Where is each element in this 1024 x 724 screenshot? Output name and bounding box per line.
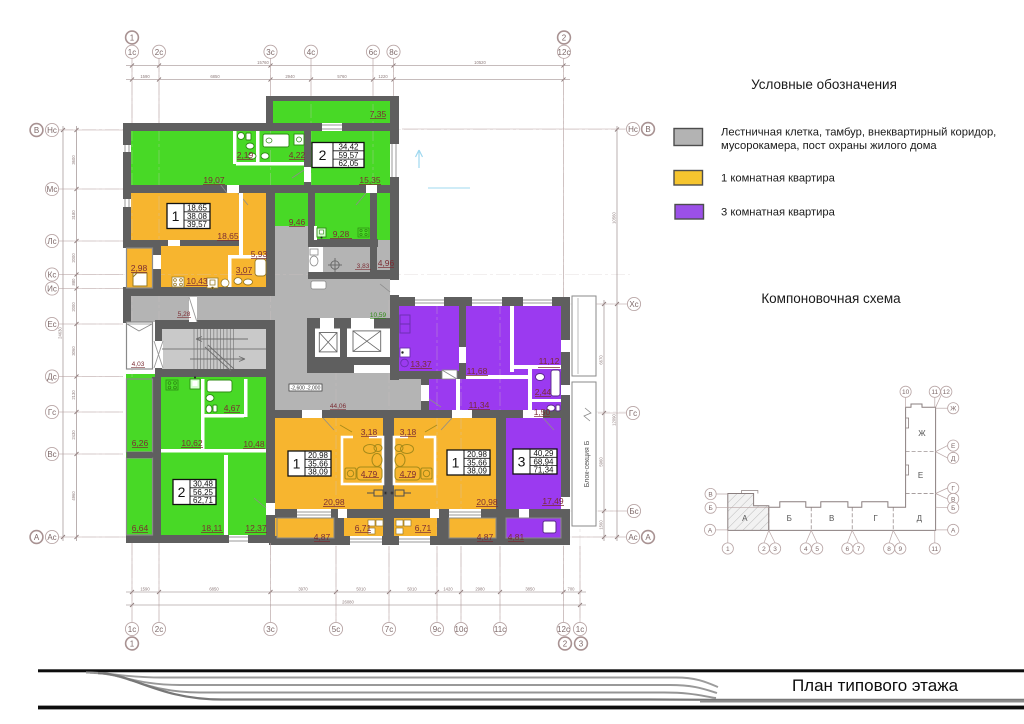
svg-text:1,50: 1,50 <box>534 407 551 417</box>
svg-text:10560: 10560 <box>612 212 617 224</box>
svg-text:1: 1 <box>172 208 180 224</box>
svg-text:А: А <box>34 533 40 542</box>
svg-text:4,96: 4,96 <box>378 258 395 268</box>
svg-text:Б: Б <box>787 514 792 523</box>
svg-text:Кс: Кс <box>48 271 57 280</box>
svg-text:71,34: 71,34 <box>533 466 554 475</box>
svg-text:План типового этажа: План типового этажа <box>792 676 959 695</box>
svg-text:Гс: Гс <box>629 409 637 418</box>
svg-text:2: 2 <box>563 640 568 649</box>
svg-text:11: 11 <box>931 546 938 553</box>
svg-text:44,06: 44,06 <box>330 403 347 410</box>
svg-text:Хс: Хс <box>629 300 638 309</box>
svg-text:Д: Д <box>917 514 923 523</box>
svg-text:5010: 5010 <box>407 587 417 592</box>
svg-text:62,05: 62,05 <box>338 159 359 168</box>
svg-text:10,43: 10,43 <box>186 276 208 286</box>
svg-text:Блок-секция Б: Блок-секция Б <box>584 440 591 487</box>
svg-text:4,87: 4,87 <box>314 532 331 542</box>
svg-text:4,87: 4,87 <box>477 532 494 542</box>
svg-text:2980: 2980 <box>475 587 485 592</box>
svg-text:Гс: Гс <box>48 408 56 417</box>
svg-text:12090: 12090 <box>612 414 617 426</box>
svg-text:3850: 3850 <box>525 587 535 592</box>
svg-text:9с: 9с <box>433 625 441 634</box>
svg-text:2: 2 <box>762 546 766 553</box>
svg-text:4960: 4960 <box>71 491 76 501</box>
svg-text:мусорокамера, пост охраны жило: мусорокамера, пост охраны жилого дома <box>721 140 937 152</box>
svg-text:Ас: Ас <box>628 533 637 542</box>
svg-text:5: 5 <box>815 546 819 553</box>
svg-text:1: 1 <box>452 455 460 471</box>
svg-text:6с: 6с <box>369 48 377 57</box>
svg-text:4,22: 4,22 <box>289 150 306 160</box>
svg-text:Д: Д <box>951 455 956 462</box>
svg-text:1560: 1560 <box>599 520 604 530</box>
svg-text:В: В <box>645 125 650 134</box>
svg-text:Дс: Дс <box>47 373 56 382</box>
svg-text:1с: 1с <box>128 625 136 634</box>
svg-text:В: В <box>34 126 39 135</box>
svg-text:1220: 1220 <box>378 74 388 79</box>
svg-text:5,28: 5,28 <box>178 311 191 318</box>
svg-text:Ж: Ж <box>950 406 956 413</box>
svg-text:11,12: 11,12 <box>539 356 560 366</box>
svg-text:3600: 3600 <box>71 155 76 165</box>
svg-text:Бс: Бс <box>629 507 638 516</box>
svg-text:18,11: 18,11 <box>202 523 223 533</box>
svg-text:2: 2 <box>178 484 186 500</box>
svg-text:10520: 10520 <box>474 60 486 65</box>
svg-text:3,83: 3,83 <box>357 263 370 270</box>
svg-text:В: В <box>829 514 834 523</box>
svg-text:8с: 8с <box>389 48 397 57</box>
svg-text:1 комнатная квартира: 1 комнатная квартира <box>721 173 836 185</box>
svg-text:20,98: 20,98 <box>323 497 345 507</box>
svg-text:39,57: 39,57 <box>187 220 208 229</box>
svg-text:6670: 6670 <box>599 355 604 365</box>
svg-text:2130: 2130 <box>71 390 76 400</box>
svg-text:А: А <box>708 527 713 534</box>
svg-text:13,37: 13,37 <box>410 359 432 369</box>
svg-text:3с: 3с <box>266 48 274 57</box>
svg-text:9,46: 9,46 <box>289 217 306 227</box>
svg-text:Г: Г <box>873 514 878 523</box>
svg-text:3180: 3180 <box>71 210 76 220</box>
svg-text:3,18: 3,18 <box>361 427 378 437</box>
svg-text:10,48: 10,48 <box>243 439 265 449</box>
svg-text:3,07: 3,07 <box>236 265 253 275</box>
svg-text:1с: 1с <box>576 625 584 634</box>
svg-text:3970: 3970 <box>298 587 308 592</box>
svg-text:1: 1 <box>130 640 135 649</box>
svg-text:Ж: Ж <box>918 429 926 438</box>
svg-text:Лестничная клетка, тамбур, вне: Лестничная клетка, тамбур, внеквартирный… <box>721 127 996 139</box>
svg-text:3,18: 3,18 <box>400 427 417 437</box>
svg-text:Б: Б <box>951 505 955 512</box>
svg-text:Г: Г <box>951 485 955 492</box>
svg-text:3: 3 <box>518 454 526 470</box>
svg-text:19,07: 19,07 <box>203 175 225 185</box>
svg-text:12: 12 <box>943 389 951 396</box>
svg-text:6: 6 <box>845 546 849 553</box>
svg-text:38,09: 38,09 <box>467 467 488 476</box>
svg-text:6,26: 6,26 <box>132 438 149 448</box>
svg-text:-2,600 -2,000: -2,600 -2,000 <box>291 386 321 392</box>
svg-text:1: 1 <box>726 546 730 553</box>
svg-text:3060: 3060 <box>71 346 76 356</box>
svg-text:11с: 11с <box>494 625 506 634</box>
svg-text:24630: 24630 <box>58 327 63 339</box>
svg-text:2,19: 2,19 <box>237 150 254 160</box>
svg-text:Е: Е <box>918 471 923 480</box>
svg-text:2с: 2с <box>155 625 163 634</box>
svg-text:4,03: 4,03 <box>132 361 145 368</box>
svg-text:2,98: 2,98 <box>131 263 148 273</box>
svg-text:А: А <box>645 533 651 542</box>
svg-text:26080: 26080 <box>342 600 354 605</box>
svg-text:Нс: Нс <box>628 125 638 134</box>
svg-text:3 комнатная квартира: 3 комнатная квартира <box>721 207 836 219</box>
svg-text:6,71: 6,71 <box>415 523 432 533</box>
svg-text:5760: 5760 <box>337 74 347 79</box>
svg-text:62,71: 62,71 <box>193 496 214 505</box>
svg-text:3: 3 <box>773 546 777 553</box>
svg-text:10с: 10с <box>455 625 468 634</box>
svg-text:1590: 1590 <box>140 74 150 79</box>
svg-text:В: В <box>708 491 712 498</box>
svg-text:4с: 4с <box>307 48 315 57</box>
svg-text:3с: 3с <box>266 625 274 634</box>
svg-text:11,68: 11,68 <box>467 366 488 376</box>
svg-text:2: 2 <box>319 147 327 163</box>
svg-text:4: 4 <box>804 546 808 553</box>
svg-text:Е: Е <box>951 443 956 450</box>
svg-text:4,81: 4,81 <box>508 532 525 542</box>
svg-text:1: 1 <box>293 456 301 472</box>
svg-text:20,98: 20,98 <box>476 497 498 507</box>
svg-text:2430: 2430 <box>71 430 76 440</box>
svg-text:9: 9 <box>898 546 902 553</box>
svg-text:7с: 7с <box>385 625 393 634</box>
svg-text:2: 2 <box>562 34 567 43</box>
svg-text:18,65: 18,65 <box>217 231 239 241</box>
svg-text:2с: 2с <box>155 48 163 57</box>
svg-text:Лс: Лс <box>47 237 56 246</box>
svg-text:11,34: 11,34 <box>469 400 490 410</box>
svg-text:880: 880 <box>71 278 76 286</box>
svg-text:17,49: 17,49 <box>542 496 564 506</box>
svg-text:10: 10 <box>902 389 910 396</box>
svg-text:2000: 2000 <box>71 253 76 263</box>
svg-text:Ас: Ас <box>47 533 56 542</box>
svg-text:6,64: 6,64 <box>132 523 149 533</box>
svg-text:1: 1 <box>130 34 135 43</box>
svg-text:6850: 6850 <box>209 587 219 592</box>
svg-text:11: 11 <box>931 389 938 396</box>
svg-text:4,67: 4,67 <box>224 403 241 413</box>
svg-text:6,71: 6,71 <box>355 523 372 533</box>
svg-text:12с: 12с <box>558 48 571 57</box>
svg-text:700: 700 <box>568 587 576 592</box>
svg-text:1590: 1590 <box>140 587 150 592</box>
svg-text:2940: 2940 <box>285 74 295 79</box>
svg-text:2000: 2000 <box>71 302 76 312</box>
svg-text:5с: 5с <box>332 625 340 634</box>
svg-text:7,35: 7,35 <box>370 109 387 119</box>
svg-text:6850: 6850 <box>210 74 220 79</box>
svg-text:Нс: Нс <box>47 126 57 135</box>
svg-text:9,28: 9,28 <box>333 229 350 239</box>
svg-text:7: 7 <box>857 546 861 553</box>
svg-text:1420: 1420 <box>443 587 453 592</box>
svg-text:10,62: 10,62 <box>181 438 203 448</box>
svg-text:Ес: Ес <box>47 320 56 329</box>
svg-text:8: 8 <box>887 546 891 553</box>
svg-text:Компоновочная схема: Компоновочная схема <box>761 291 901 306</box>
svg-text:1с: 1с <box>128 48 136 57</box>
svg-text:А: А <box>951 527 956 534</box>
svg-text:38,09: 38,09 <box>308 468 329 477</box>
svg-text:10,59: 10,59 <box>370 312 387 319</box>
svg-text:Б: Б <box>708 505 712 512</box>
svg-text:5,93: 5,93 <box>251 249 268 259</box>
svg-text:12с: 12с <box>557 625 570 634</box>
svg-text:Вс: Вс <box>47 450 56 459</box>
svg-text:5960: 5960 <box>599 457 604 467</box>
svg-text:Ис: Ис <box>47 285 57 294</box>
svg-text:15760: 15760 <box>257 60 269 65</box>
svg-text:5010: 5010 <box>356 587 366 592</box>
svg-text:12,37: 12,37 <box>245 523 267 533</box>
svg-text:15,35: 15,35 <box>359 175 381 185</box>
svg-text:А: А <box>742 514 748 523</box>
svg-text:3: 3 <box>579 640 584 649</box>
svg-text:Условные обозначения: Условные обозначения <box>751 77 897 92</box>
svg-text:Мс: Мс <box>47 185 58 194</box>
svg-text:2,44: 2,44 <box>535 387 552 397</box>
